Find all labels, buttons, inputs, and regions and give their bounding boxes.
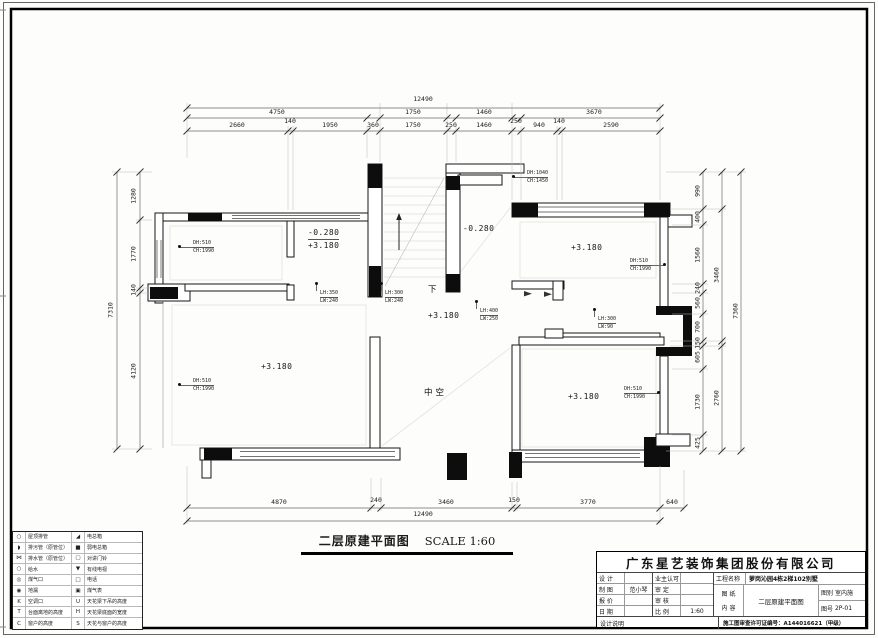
room-label: 中空 (424, 389, 447, 398)
title-block: 广东星艺装饰集团股份有限公司 设 计 制 图范小琴 报 价 日 期 业主认可 审… (596, 551, 866, 628)
legend-label: 电话 (85, 575, 142, 585)
legend-table: ○ 屋顶排管 ◢ 电总箱 ◗ 排污管（原管位） ■ 弱电总箱 ⋈ 排水管（原管位… (12, 531, 143, 630)
legend-symbol: H (72, 607, 85, 617)
titleblock-row: 业主认可 (653, 573, 713, 584)
legend-row: T 台面离地的高度 H 天花梁底面的宽度 (13, 607, 142, 618)
legend-symbol: ▼ (72, 564, 85, 574)
legend-symbol: ○ (13, 532, 26, 542)
legend-symbol: ■ (72, 543, 85, 553)
legend-symbol: ▢ (72, 554, 85, 564)
legend-symbol: ⋈ (13, 554, 26, 564)
legend-label: 天花梁下吊的高度 (85, 597, 142, 607)
titleblock-row: 审 核 (653, 595, 713, 606)
drawing-number: 图号 2P-01 (819, 601, 865, 616)
legend-symbol: K (13, 597, 26, 607)
legend-symbol: C (13, 618, 26, 629)
legend-label: 空调口 (26, 597, 72, 607)
plan-caption: 二层原建平面图 SCALE 1:60 (301, 530, 513, 555)
legend-symbol: T (13, 607, 26, 617)
legend-row: ○ 给水 ▼ 有线电视 (13, 564, 142, 575)
legend-symbol: □ (72, 575, 85, 585)
titleblock-left-column: 设 计 制 图范小琴 报 价 日 期 (597, 573, 653, 616)
legend-label: 屋顶排管 (26, 532, 72, 542)
legend-label: 天花梁底面的宽度 (85, 607, 142, 617)
drawing-class: 图别 室内施 (819, 585, 865, 601)
project-name-value: 萝岗沁园4栋2梯102别墅 (746, 573, 865, 584)
legend-label: 地漏 (26, 586, 72, 596)
titleblock-row: 报 价 (597, 595, 652, 606)
drawing-sheet: 1249047501750146036702660140195036017502… (0, 0, 878, 638)
project-name-label: 工程名称 (714, 573, 746, 584)
legend-row: K 空调口 U 天花梁下吊的高度 (13, 597, 142, 608)
legend-symbol: S (72, 618, 85, 629)
legend-label: 排水管（原管位） (26, 554, 72, 564)
legend-symbol: ◗ (13, 543, 26, 553)
legend-label: 窗户的高度 (26, 618, 72, 629)
legend-row: C 窗户的高度 S 天花与窗户的高度 (13, 618, 142, 629)
legend-label: 天花与窗户的高度 (85, 618, 142, 629)
plan-title: 二层原建平面图 (319, 534, 410, 548)
legend-symbol: ◎ (13, 575, 26, 585)
titleblock-row: 比 例1:60 (653, 606, 713, 616)
company-name: 广东星艺装饰集团股份有限公司 (597, 552, 865, 573)
titleblock-row: 制 图范小琴 (597, 584, 652, 595)
legend-symbol: ◢ (72, 532, 85, 542)
legend-label: 煤气表 (85, 586, 142, 596)
legend-row: ◎ 煤气口 □ 电话 (13, 575, 142, 586)
legend-symbol: ○ (13, 564, 26, 574)
legend-symbol: U (72, 597, 85, 607)
titleblock-middle-column: 业主认可 审 定 审 核 比 例1:60 (653, 573, 714, 616)
legend-label: 对讲门铃 (85, 554, 142, 564)
permit-number: 施工图审查许可证编号：A144016621（甲级） (719, 617, 865, 629)
legend-label: 电总箱 (85, 532, 142, 542)
legend-row: ○ 屋顶排管 ◢ 电总箱 (13, 532, 142, 543)
legend-label: 弱电总箱 (85, 543, 142, 553)
titleblock-right-column: 工程名称 萝岗沁园4栋2梯102别墅 图 纸 内 容 二层原建平面图 图别 室内… (714, 573, 865, 616)
legend-label: 煤气口 (26, 575, 72, 585)
sheet-content-label: 图 纸 内 容 (714, 585, 744, 616)
titleblock-row: 日 期 (597, 606, 652, 616)
legend-label: 有线电视 (85, 564, 142, 574)
legend-label: 给水 (26, 564, 72, 574)
room-label: 下 (428, 286, 440, 295)
plan-scale: SCALE 1:60 (425, 534, 496, 548)
legend-row: ◗ 排污管（原管位） ■ 弱电总箱 (13, 543, 142, 554)
legend-row: ⋈ 排水管（原管位） ▢ 对讲门铃 (13, 554, 142, 565)
legend-label: 排污管（原管位） (26, 543, 72, 553)
legend-symbol: ◉ (13, 586, 26, 596)
legend-label: 台面离地的高度 (26, 607, 72, 617)
legend-symbol: ▣ (72, 586, 85, 596)
sheet-content-value: 二层原建平面图 (744, 585, 819, 616)
titleblock-row: 设 计 (597, 573, 652, 584)
design-notes-label: 设计说明 (597, 617, 719, 629)
legend-row: ◉ 地漏 ▣ 煤气表 (13, 586, 142, 597)
titleblock-row: 审 定 (653, 584, 713, 595)
